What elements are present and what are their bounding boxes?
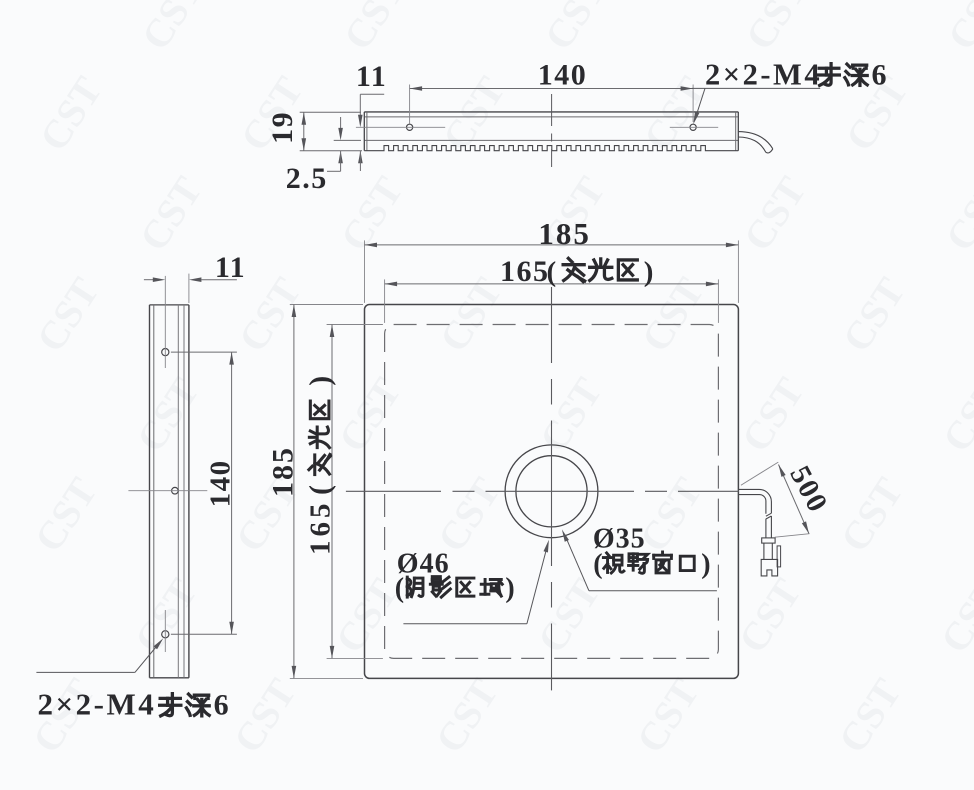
svg-text:(: (: [593, 549, 602, 580]
svg-text:): ): [505, 573, 514, 604]
svg-text:140: 140: [538, 59, 588, 92]
svg-text:(: (: [395, 573, 404, 604]
svg-text:140: 140: [205, 459, 237, 507]
svg-text:185: 185: [538, 216, 591, 251]
svg-text:185: 185: [267, 446, 300, 497]
svg-text:2×2-M4: 2×2-M4: [705, 58, 822, 92]
svg-text:2×2-M4: 2×2-M4: [38, 687, 157, 722]
svg-text:(: (: [547, 256, 557, 288]
svg-text:11: 11: [215, 251, 246, 284]
svg-text:2.5: 2.5: [286, 162, 328, 195]
svg-text:): ): [644, 256, 654, 288]
svg-text:): ): [701, 549, 710, 580]
svg-text:19: 19: [266, 111, 299, 144]
svg-text:165: 165: [305, 500, 337, 556]
svg-text:Ø46: Ø46: [397, 549, 450, 580]
svg-text:): ): [304, 376, 337, 386]
svg-text:(: (: [304, 485, 337, 495]
svg-text:11: 11: [356, 60, 387, 93]
svg-text:6: 6: [872, 59, 889, 92]
svg-text:165: 165: [500, 255, 550, 288]
svg-text:6: 6: [214, 689, 231, 722]
